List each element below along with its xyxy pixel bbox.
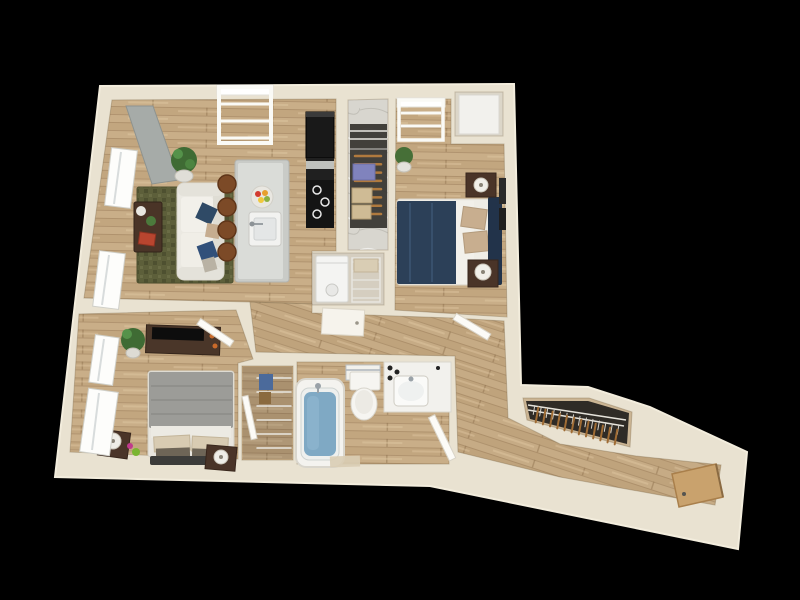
lamp-center xyxy=(219,455,223,459)
refrigerator xyxy=(306,112,334,158)
fruit-orange xyxy=(262,190,268,196)
toilet-seat xyxy=(355,390,373,414)
floorplan-stage xyxy=(0,0,800,600)
toy-green xyxy=(132,448,140,456)
bar-stool xyxy=(218,198,236,216)
wall-art-frame xyxy=(499,208,506,230)
bar-stool xyxy=(218,243,236,261)
bed1-pillow xyxy=(463,231,489,253)
laundry-linens xyxy=(354,259,378,272)
bath-mat xyxy=(330,455,360,467)
vanity-accessory xyxy=(388,376,393,381)
vanity-accessory xyxy=(395,370,400,375)
bed1-pillow xyxy=(461,206,488,229)
bar-stool xyxy=(218,221,236,239)
vanity-faucet xyxy=(409,377,414,382)
table-plant xyxy=(146,216,156,226)
alcove-appliance xyxy=(459,95,499,134)
closet2-clothes-brown xyxy=(259,392,271,404)
closet-basket xyxy=(352,205,371,219)
lamp-center xyxy=(479,183,483,187)
washer-door xyxy=(326,284,338,296)
wall-art-frame xyxy=(499,178,506,204)
vanity-basin xyxy=(398,381,424,401)
fruit-green xyxy=(264,196,270,202)
vanity-accessory xyxy=(436,366,440,370)
fruit-yellow xyxy=(258,197,264,203)
island-sink-basin xyxy=(254,218,276,240)
column-plant-leaf xyxy=(173,149,183,159)
tv xyxy=(152,327,204,341)
sofa-arm-top xyxy=(178,184,223,196)
apartment-3d-floorplan xyxy=(0,0,800,600)
column-plant-leaf xyxy=(185,159,195,169)
table-flowers xyxy=(136,206,146,216)
fruit-red xyxy=(255,191,261,197)
bedroom1-plant-pot xyxy=(397,162,411,172)
bed1-duvet-navy xyxy=(397,201,459,284)
bedroom2-plant-leaf xyxy=(122,329,132,339)
dresser-decor xyxy=(213,344,218,349)
toy-pink xyxy=(127,443,133,449)
bathtub-water-highlight xyxy=(307,396,319,450)
island-faucet-base xyxy=(250,222,255,227)
table-book xyxy=(138,232,156,246)
refrigerator-top xyxy=(306,112,334,117)
closet-folded-towels xyxy=(353,164,375,180)
laundry-door-knob xyxy=(355,321,359,325)
vanity-accessory xyxy=(388,366,393,371)
toilet-tank xyxy=(350,372,380,390)
kitchen-counter-top xyxy=(306,161,334,169)
bedroom2-plant-pot xyxy=(126,348,140,358)
lamp-center xyxy=(481,270,485,274)
closet-basket xyxy=(352,188,372,203)
entry-door-handle xyxy=(682,492,686,496)
column-plant-pot xyxy=(175,170,193,182)
bar-stool xyxy=(218,175,236,193)
closet2-clothes-blue xyxy=(259,374,273,390)
fruit-bowl xyxy=(251,186,273,208)
